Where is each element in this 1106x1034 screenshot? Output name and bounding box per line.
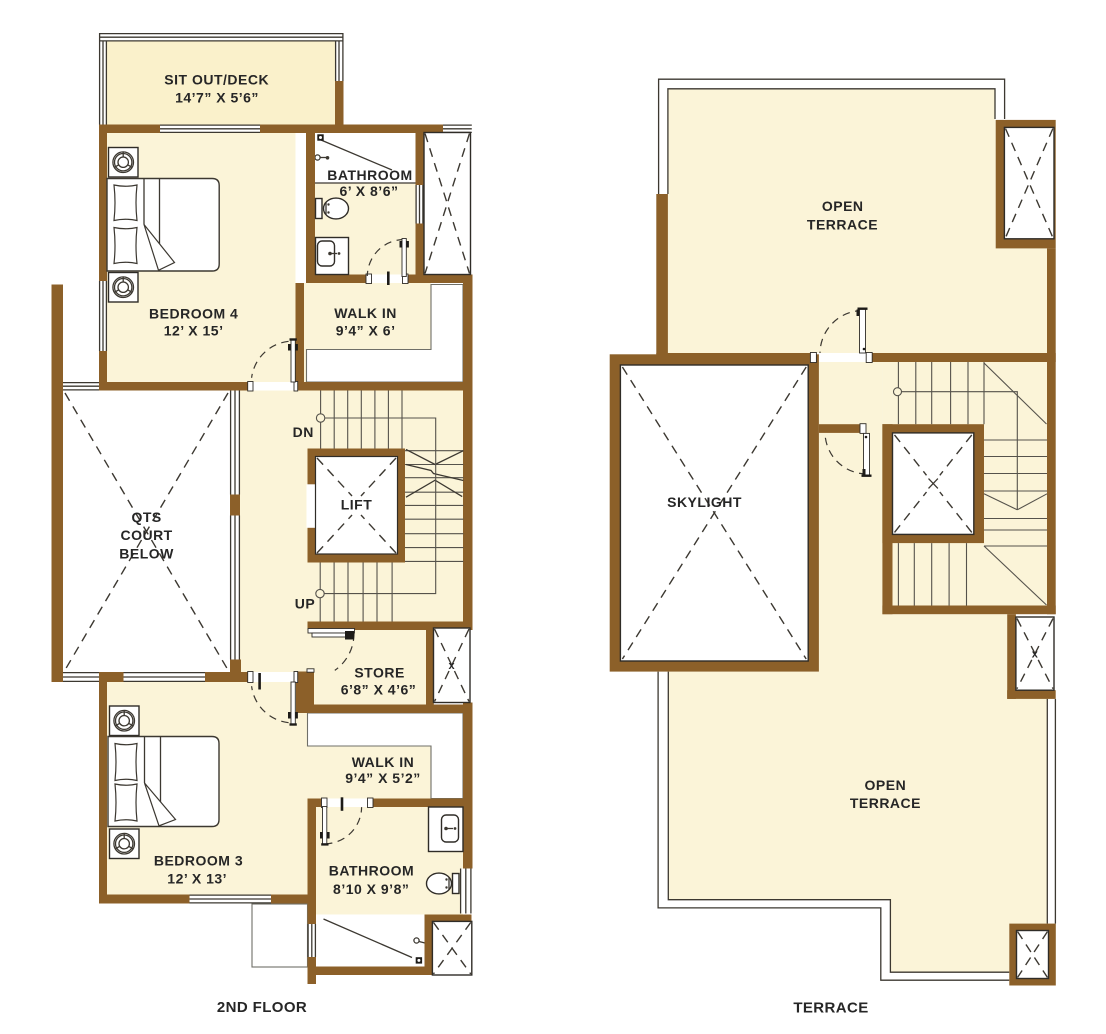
- svg-text:TERRACE: TERRACE: [793, 1000, 868, 1017]
- svg-text:9’4” X 5’2”: 9’4” X 5’2”: [345, 770, 421, 786]
- svg-text:6’ X 8’6”: 6’ X 8’6”: [340, 183, 399, 199]
- svg-text:2ND FLOOR: 2ND FLOOR: [217, 999, 307, 1016]
- svg-text:WALK IN: WALK IN: [334, 305, 397, 321]
- svg-text:BELOW: BELOW: [119, 546, 174, 562]
- svg-text:9’4” X 6’: 9’4” X 6’: [336, 322, 396, 338]
- svg-text:12’ X 13’: 12’ X 13’: [167, 871, 227, 887]
- svg-text:QTS: QTS: [131, 509, 161, 525]
- svg-text:8’10 X 9’8”: 8’10 X 9’8”: [333, 881, 409, 897]
- svg-text:TERRACE: TERRACE: [807, 216, 878, 232]
- svg-text:COURT: COURT: [120, 527, 172, 543]
- svg-text:x: x: [448, 660, 455, 672]
- svg-text:6’8” X 4’6”: 6’8” X 4’6”: [341, 681, 417, 697]
- svg-text:DN: DN: [293, 424, 314, 440]
- svg-text:UP: UP: [295, 596, 315, 612]
- svg-text:14’7” X 5’6”: 14’7” X 5’6”: [175, 89, 259, 105]
- svg-text:WALK IN: WALK IN: [352, 754, 415, 770]
- svg-text:OPEN: OPEN: [822, 198, 864, 214]
- svg-text:STORE: STORE: [354, 664, 404, 680]
- svg-text:SIT OUT/DECK: SIT OUT/DECK: [164, 72, 269, 88]
- svg-text:BEDROOM 3: BEDROOM 3: [154, 852, 243, 868]
- svg-text:x: x: [1032, 649, 1039, 661]
- svg-text:BATHROOM: BATHROOM: [327, 167, 412, 183]
- svg-text:TERRACE: TERRACE: [850, 795, 921, 811]
- svg-text:OPEN: OPEN: [865, 777, 907, 793]
- svg-text:BEDROOM 4: BEDROOM 4: [149, 306, 238, 322]
- svg-text:SKYLIGHT: SKYLIGHT: [667, 494, 742, 510]
- svg-text:12’ X 15’: 12’ X 15’: [164, 323, 224, 339]
- svg-text:BATHROOM: BATHROOM: [329, 862, 414, 878]
- svg-text:LIFT: LIFT: [341, 497, 373, 513]
